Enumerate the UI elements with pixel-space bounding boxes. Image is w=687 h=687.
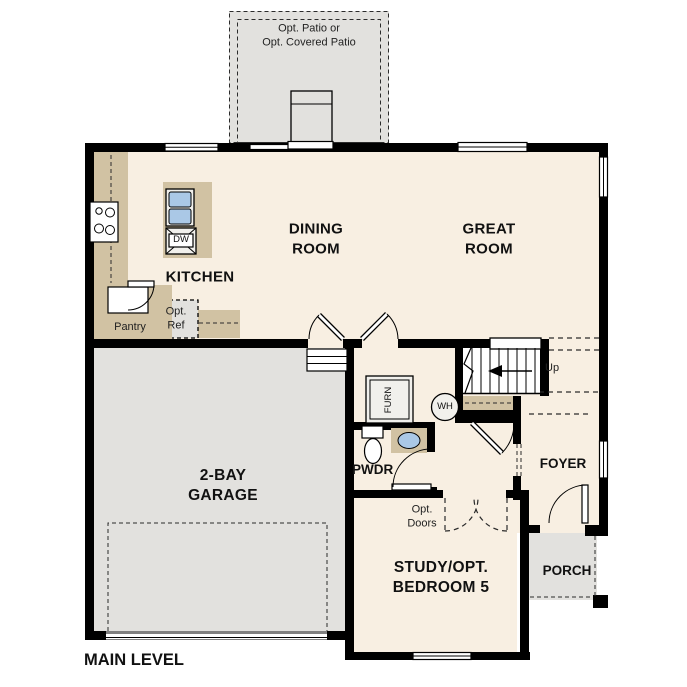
water-heater-label: WH [437, 401, 453, 413]
annotation-up: Up [545, 361, 559, 375]
study-window [413, 653, 471, 660]
garage-steps [307, 349, 347, 371]
room-label-foyer: FOYER [540, 455, 587, 473]
kitchen-window [165, 144, 218, 152]
patio-stoop [291, 91, 332, 143]
room-label-garage: 2-BAY GARAGE [188, 466, 258, 506]
room-label-pantry: Pantry [114, 320, 146, 334]
room-label-porch: PORCH [543, 562, 592, 580]
room-label-pwdr: PWDR [352, 461, 393, 479]
furnace-label: FURN [383, 387, 395, 413]
great-room-window-top [458, 143, 527, 152]
page-title: MAIN LEVEL [84, 650, 184, 671]
dishwasher-label: DW [173, 234, 189, 246]
floor-plan-drawing [0, 0, 687, 687]
room-label-kitchen: KITCHEN [166, 267, 235, 287]
room-label-patio: Opt. Patio or Opt. Covered Patio [262, 22, 356, 51]
room-label-great: GREAT ROOM [463, 220, 516, 259]
floor-plan: Opt. Patio or Opt. Covered Patio DINING … [0, 0, 687, 687]
garage-door [106, 632, 327, 640]
great-room-window-right [600, 157, 608, 197]
foyer-window [600, 441, 608, 478]
annotation-opt-doors: Opt. Doors [407, 503, 436, 532]
annotation-opt-ref: Opt. Ref [166, 305, 187, 334]
stove-icon [90, 202, 118, 242]
vanity-sink-icon [391, 428, 427, 453]
room-label-dining: DINING ROOM [289, 220, 343, 259]
kitchen-sink-icon [166, 189, 194, 226]
room-label-study: STUDY/OPT. BEDROOM 5 [393, 558, 490, 598]
kitchen-counter [198, 310, 240, 338]
